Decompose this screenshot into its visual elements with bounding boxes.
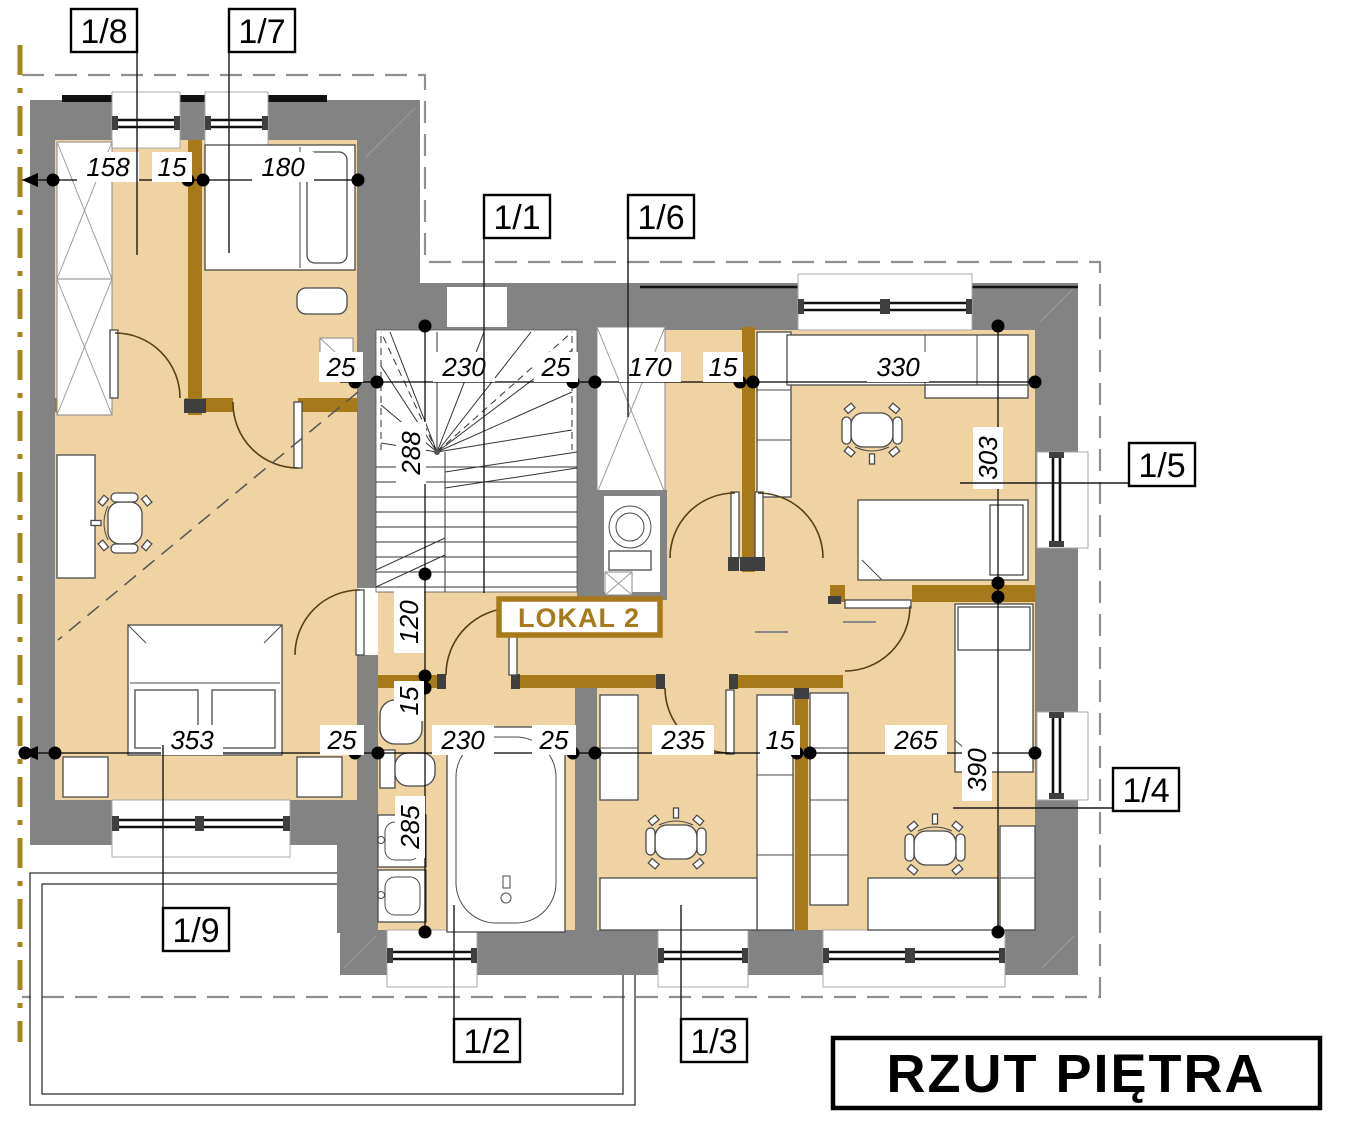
svg-text:15: 15: [709, 352, 738, 382]
desk-hall: [57, 455, 95, 578]
tag-1-7: 1/7: [229, 9, 295, 52]
laundry-niche: [597, 490, 667, 600]
door-leaf-1-7: [294, 402, 302, 468]
window-1-5-top: [798, 274, 972, 330]
svg-text:1/2: 1/2: [463, 1023, 510, 1061]
dim-180: 180: [252, 152, 314, 182]
dim-15d: 15: [394, 681, 424, 721]
wardrobe-1-4-corner: [1000, 826, 1035, 930]
roof-edge-bar-left: [62, 95, 327, 102]
svg-text:330: 330: [876, 352, 920, 382]
dim-158: 158: [77, 152, 139, 182]
svg-text:15: 15: [766, 725, 795, 755]
dim-265: 265: [885, 725, 947, 755]
dim-15a: 15: [152, 152, 192, 182]
svg-text:230: 230: [441, 352, 486, 382]
partition-1-5-south-b: [912, 585, 1035, 602]
balcony-window-1-9: [112, 800, 290, 857]
tag-1-3: 1/3: [681, 1019, 747, 1062]
floor-plan-drawing: 158 15 180 25 230 25 170 15 330 353 25 2…: [0, 0, 1370, 1128]
wall-right-main-wing: [1035, 283, 1078, 975]
sink-2: [378, 870, 427, 922]
wall-connector: [337, 845, 378, 933]
svg-text:170: 170: [628, 352, 672, 382]
wall-stair-left: [357, 283, 378, 588]
door-leaf-corridor-left: [731, 492, 739, 558]
wardrobe-1-5: [757, 332, 791, 497]
svg-text:285: 285: [395, 805, 425, 850]
nightstand-1-7: [297, 288, 347, 314]
svg-text:1/6: 1/6: [637, 199, 684, 237]
title-block: RZUT PIĘTRA: [833, 1038, 1320, 1108]
dim-15b: 15: [703, 352, 743, 382]
window-1-8: [112, 92, 180, 148]
wall-niche: [447, 287, 507, 327]
tag-1-5: 1/5: [1129, 443, 1195, 486]
dim-25b: 25: [534, 352, 578, 382]
svg-text:303: 303: [973, 436, 1003, 480]
svg-text:1/1: 1/1: [493, 199, 540, 237]
dim-120: 120: [394, 591, 424, 653]
dim-230a: 230: [433, 352, 495, 382]
dim-230b: 230: [432, 725, 494, 755]
partition-1-3-1-4: [795, 688, 808, 930]
svg-text:353: 353: [170, 725, 214, 755]
svg-text:1/9: 1/9: [172, 912, 219, 950]
svg-text:1/8: 1/8: [80, 13, 127, 51]
dim-15c: 15: [760, 725, 800, 755]
svg-text:15: 15: [158, 152, 187, 182]
svg-text:1/7: 1/7: [238, 13, 285, 51]
wardrobe-1-8: [57, 142, 112, 415]
unit-label: LOKAL 2: [499, 599, 660, 635]
svg-text:158: 158: [86, 152, 130, 182]
dim-330: 330: [867, 352, 929, 382]
window-1-5-right: [1037, 452, 1088, 548]
dim-288: 288: [396, 422, 426, 484]
dim-285: 285: [395, 796, 425, 858]
door-leaf-1-8: [110, 330, 118, 398]
dim-390: 390: [962, 739, 992, 801]
svg-text:25: 25: [541, 352, 571, 382]
partition-1-6-1-5: [742, 327, 755, 572]
window-bathroom: [387, 930, 477, 987]
tag-1-4: 1/4: [1113, 768, 1179, 811]
wardrobe-1-4-west: [810, 693, 848, 905]
tag-1-8: 1/8: [71, 9, 137, 52]
dim-303: 303: [973, 427, 1003, 489]
svg-text:180: 180: [261, 152, 305, 182]
dim-353: 353: [161, 725, 223, 755]
wall-right-upper-left-wing: [357, 100, 420, 283]
corridor-wall-b: [513, 675, 658, 688]
wall-left: [30, 100, 55, 845]
tag-1-2: 1/2: [454, 1019, 520, 1062]
svg-text:1/4: 1/4: [1122, 772, 1169, 810]
tag-1-1: 1/1: [484, 195, 550, 238]
svg-text:LOKAL 2: LOKAL 2: [518, 603, 640, 633]
door-leaf-1-3: [726, 690, 734, 754]
door-leaf-hall: [356, 590, 364, 655]
wall-bath-room3: [575, 688, 597, 930]
dim-25c: 25: [320, 725, 364, 755]
svg-text:390: 390: [962, 748, 992, 792]
window-1-7: [205, 92, 268, 148]
toilet: [380, 750, 435, 788]
floor-plan-page: 158 15 180 25 230 25 170 15 330 353 25 2…: [0, 0, 1370, 1128]
wall-stair-right: [577, 330, 597, 602]
dim-235: 235: [652, 725, 714, 755]
svg-text:25: 25: [326, 352, 356, 382]
wardrobe-1-3-west: [600, 695, 638, 800]
door-leaf-1-4: [845, 600, 911, 608]
dim-25d: 25: [532, 725, 576, 755]
tag-1-6: 1/6: [628, 195, 694, 238]
svg-text:1/5: 1/5: [1138, 447, 1185, 485]
svg-text:235: 235: [660, 725, 705, 755]
svg-text:RZUT PIĘTRA: RZUT PIĘTRA: [887, 1044, 1266, 1104]
svg-text:1/3: 1/3: [690, 1023, 737, 1061]
svg-text:120: 120: [394, 600, 424, 644]
svg-text:25: 25: [539, 725, 569, 755]
wall-top-left-wing: [30, 100, 358, 140]
svg-text:265: 265: [893, 725, 938, 755]
window-1-4-right: [1037, 712, 1088, 800]
svg-text:230: 230: [440, 725, 485, 755]
desk-1-4: [868, 878, 998, 930]
tag-1-9: 1/9: [163, 908, 229, 951]
door-leaf-corridor-right: [755, 492, 763, 558]
desk-1-3: [600, 878, 757, 930]
bed-1-5: [858, 500, 1028, 580]
corridor-wall-c: [730, 675, 843, 688]
dim-25a: 25: [319, 352, 363, 382]
bathtub: [447, 727, 565, 932]
svg-text:15: 15: [394, 686, 424, 715]
nightstand-1-9-right: [297, 757, 342, 797]
window-1-3: [658, 930, 748, 987]
window-1-4-bottom: [823, 930, 1005, 987]
nightstand-1-9-left: [63, 757, 108, 797]
svg-text:288: 288: [396, 431, 426, 476]
svg-text:25: 25: [327, 725, 357, 755]
